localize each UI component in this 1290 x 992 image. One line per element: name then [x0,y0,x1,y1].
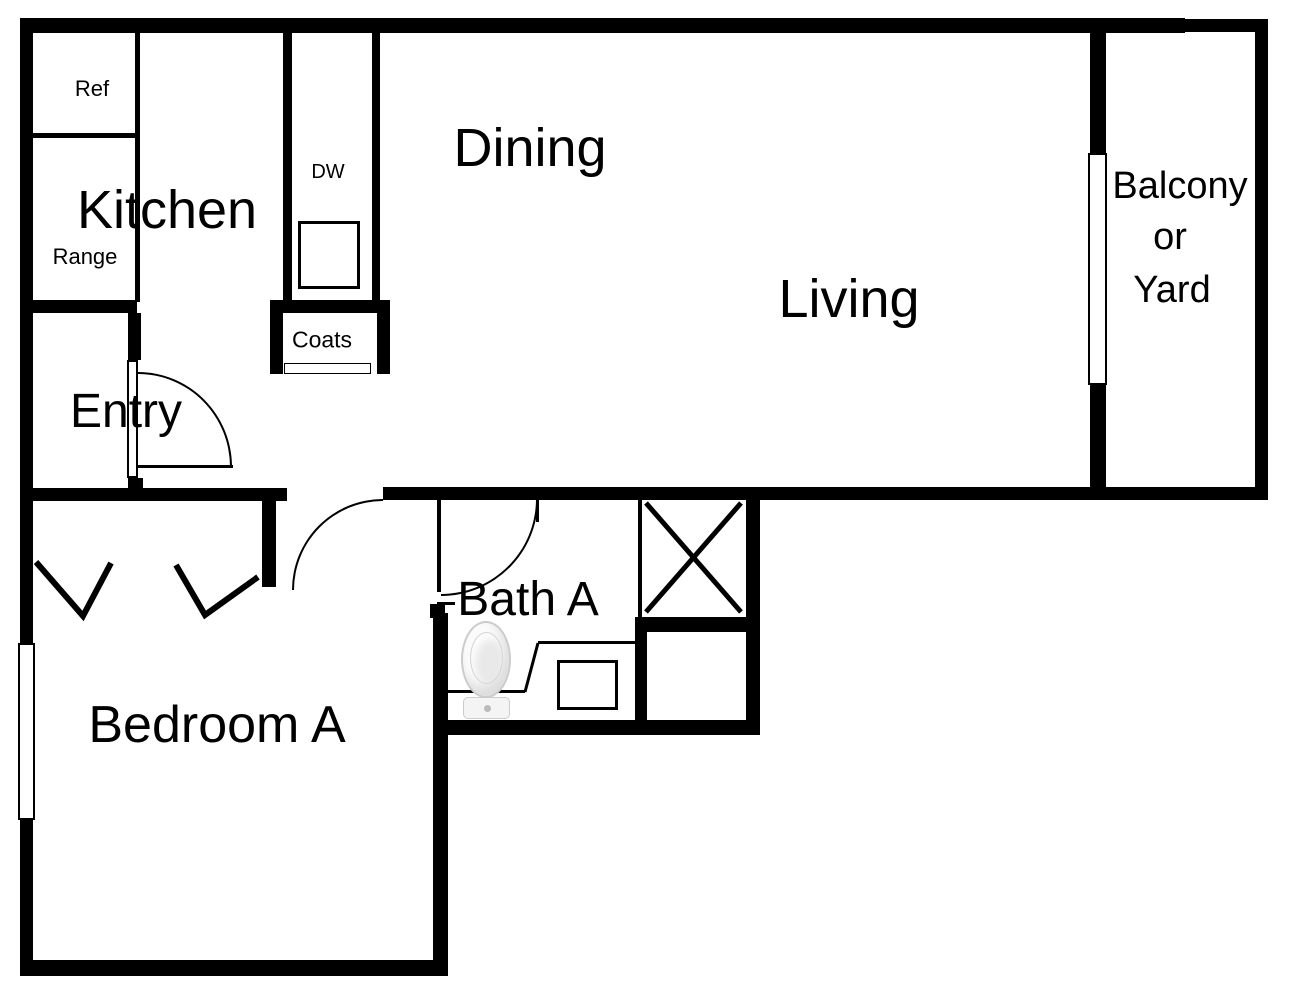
coats-label: Coats [292,329,352,352]
kitchen-label: Kitchen [77,183,257,237]
floor-plan: Kitchen Dining Living Entry Coats Bath A… [0,0,1290,992]
closet-bifold-door-icon [36,562,111,616]
balcony-label-line1: Balcony [1112,167,1247,205]
refrigerator-label: Ref [75,78,109,100]
dining-label: Dining [453,121,606,175]
dishwasher-label: DW [311,162,344,182]
closet-bifold-door-icon [176,565,258,615]
living-label: Living [778,272,919,326]
balcony-label-line2: or [1153,218,1187,256]
plan-linework [0,0,1290,992]
bath-counter-angle-line [525,643,538,692]
entry-label: Entry [70,388,182,436]
bath-a-label: Bath A [457,576,598,624]
range-label: Range [53,246,118,268]
bedroom-a-label: Bedroom A [88,699,345,751]
balcony-label-line3: Yard [1133,271,1210,309]
